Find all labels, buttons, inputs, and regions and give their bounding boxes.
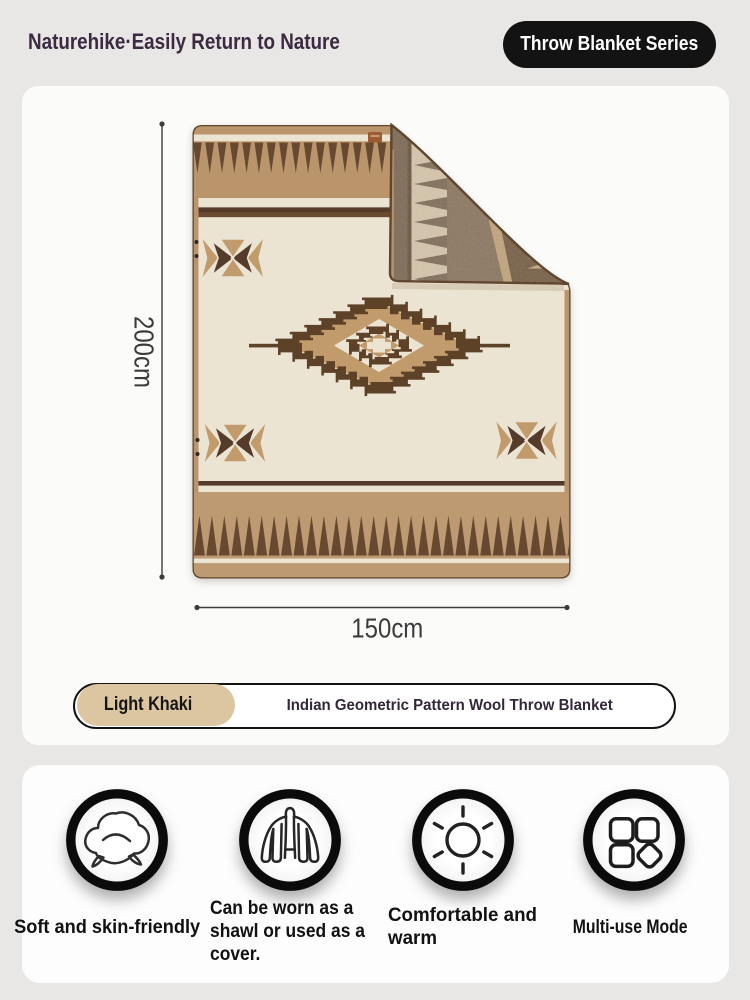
svg-text:150cm: 150cm <box>351 613 423 644</box>
svg-text:200cm: 200cm <box>129 316 160 388</box>
